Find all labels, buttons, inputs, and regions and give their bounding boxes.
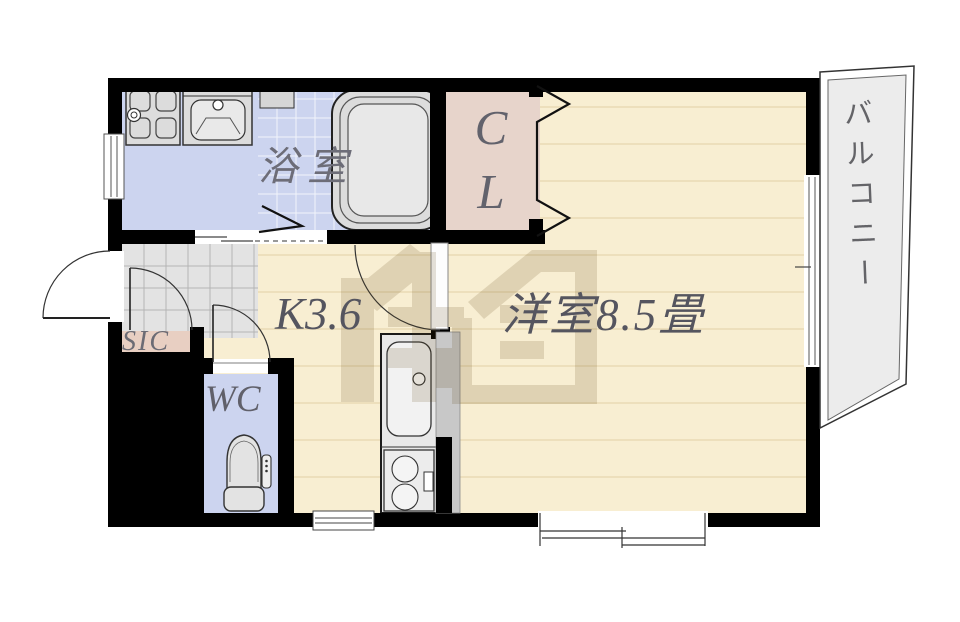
- balcony-label: バルコニー: [834, 97, 885, 299]
- entry-door: [43, 251, 110, 318]
- window-bottom: [538, 511, 708, 548]
- toilet-tank: [224, 487, 264, 511]
- closet-letter-l: L: [477, 160, 504, 224]
- floorplan-canvas: 浴室 C L 洋室8.5畳 K3.6 WC SIC バルコニー: [0, 0, 960, 622]
- entry-opening: [106, 251, 124, 322]
- closet-letter-c: C: [475, 96, 508, 160]
- washroom-sliding-door: [195, 231, 253, 244]
- entrance-tile-floor: [122, 244, 258, 338]
- drain-icon: [128, 109, 141, 122]
- window-left: [104, 134, 124, 199]
- bathroom-label: 浴室: [258, 134, 356, 192]
- stove: [384, 450, 434, 511]
- sic-label: SIC: [122, 326, 170, 358]
- wall-mass: [108, 352, 204, 527]
- faucet-icon: [213, 100, 223, 110]
- kitchen-label: K3.6: [275, 288, 361, 340]
- floorplan-drawing: [0, 0, 960, 622]
- wc-label: WC: [205, 378, 261, 421]
- vanity-sink: [183, 87, 252, 145]
- closet-label: C L: [460, 96, 522, 224]
- window-kitchen: [313, 511, 374, 530]
- washing-machine-pan: [126, 87, 180, 145]
- western-room-label: 洋室8.5畳: [502, 278, 705, 343]
